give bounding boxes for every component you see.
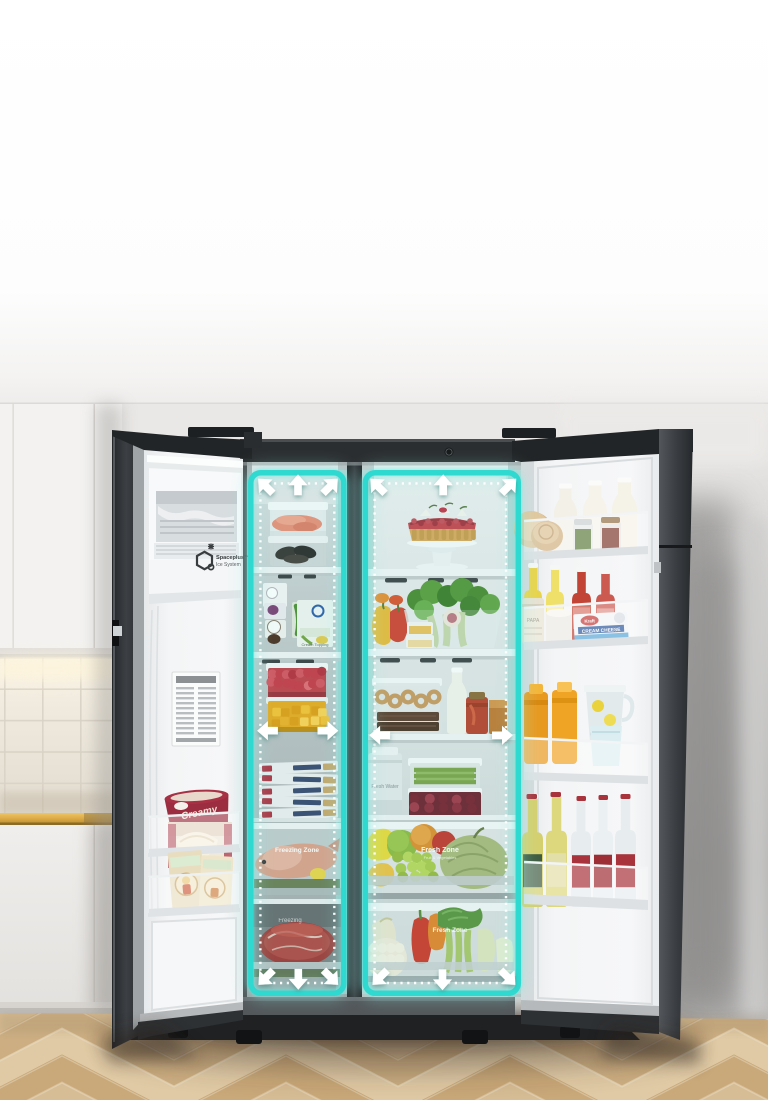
svg-text:Ice System: Ice System (216, 562, 241, 568)
